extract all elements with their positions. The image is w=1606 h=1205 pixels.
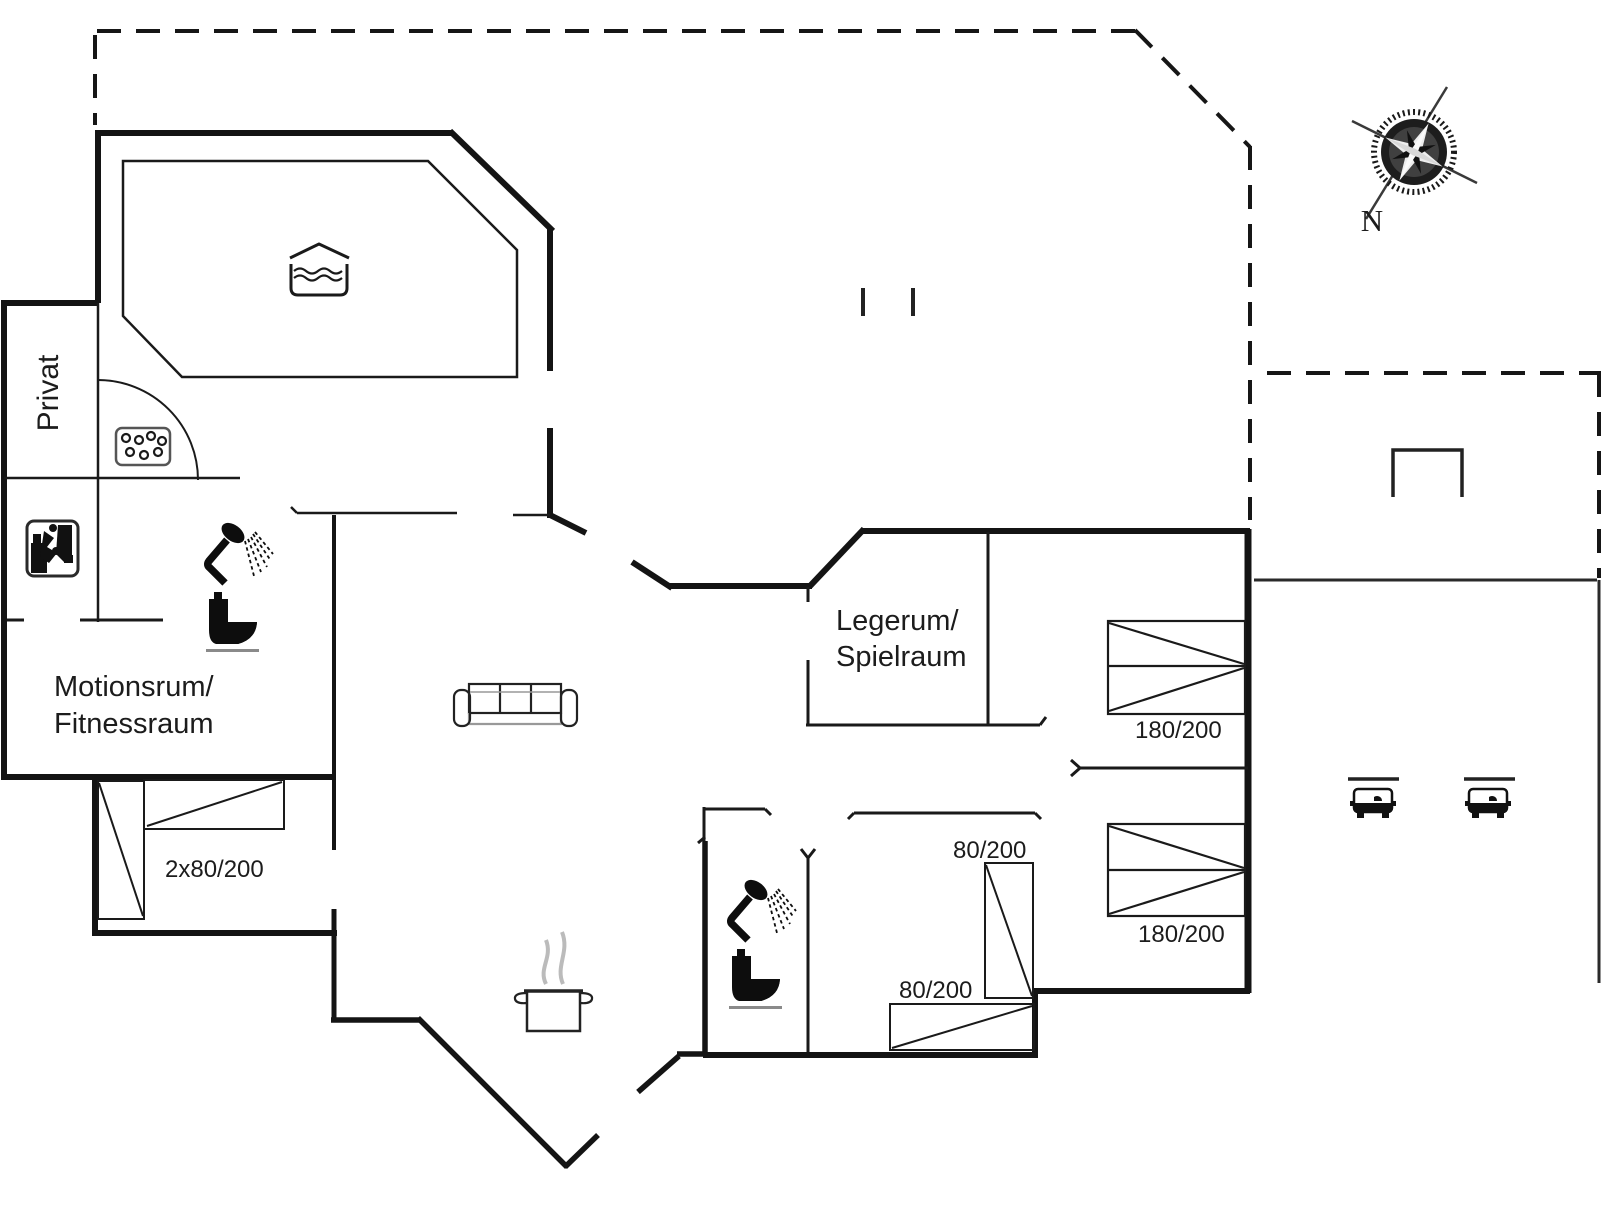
svg-text:2x80/200: 2x80/200 — [165, 856, 264, 883]
svg-text:80/200: 80/200 — [953, 837, 1026, 864]
svg-text:Privat: Privat — [32, 354, 65, 431]
svg-text:Spielraum: Spielraum — [836, 641, 967, 673]
svg-text:Legerum/: Legerum/ — [836, 605, 959, 637]
svg-text:Fitnessraum: Fitnessraum — [54, 708, 214, 740]
svg-text:Motionsrum/: Motionsrum/ — [54, 671, 214, 703]
svg-text:80/200: 80/200 — [899, 977, 972, 1004]
svg-text:180/200: 180/200 — [1138, 921, 1225, 948]
svg-text:180/200: 180/200 — [1135, 717, 1222, 744]
svg-text:N: N — [1361, 203, 1383, 238]
